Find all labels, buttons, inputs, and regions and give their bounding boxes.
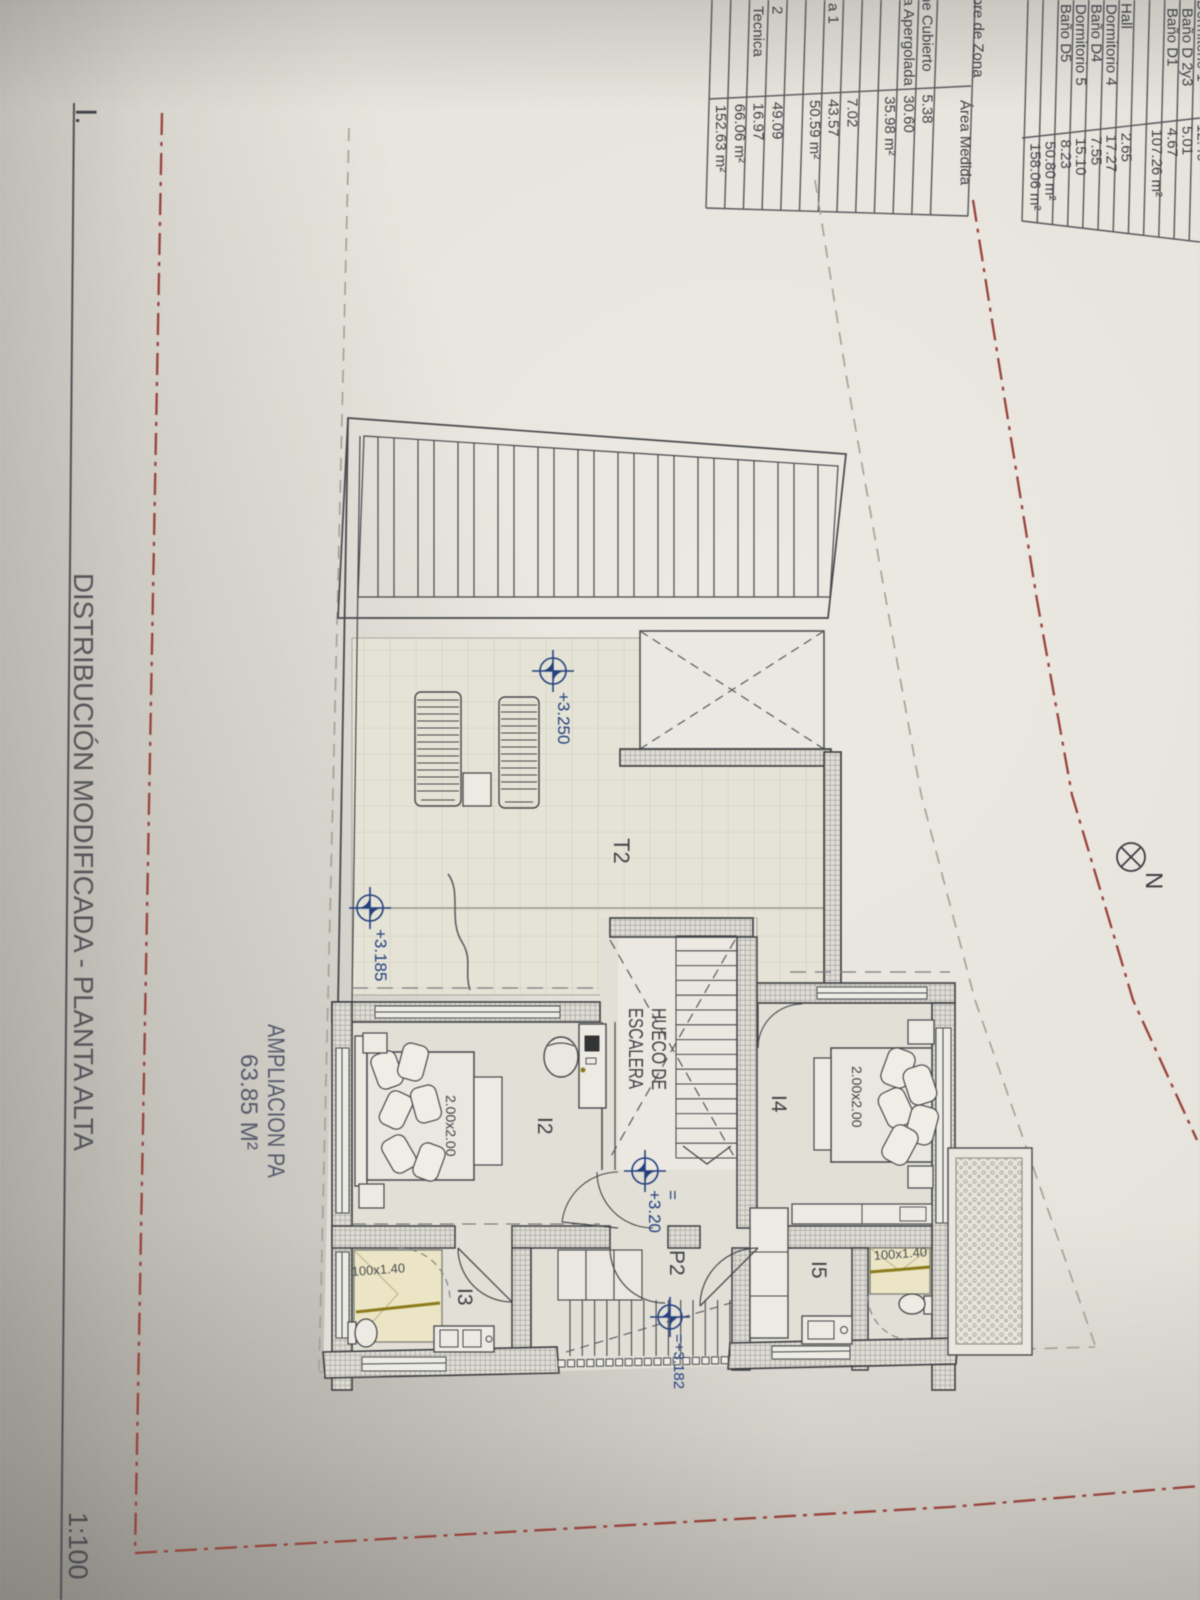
svg-text:16.97: 16.97: [750, 103, 767, 141]
svg-text:=+3.182: =+3.182: [670, 1334, 687, 1389]
svg-text:+3.20: +3.20: [645, 1190, 664, 1233]
svg-text:DISTRIBUCIÓN MODIFICADA - PLAN: DISTRIBUCIÓN MODIFICADA - PLANTA ALTA: [68, 573, 99, 1151]
svg-text:N: N: [1140, 872, 1167, 889]
svg-text:7.55: 7.55: [1087, 136, 1104, 165]
svg-text:AMPLIACION PA: AMPLIACION PA: [262, 1024, 289, 1178]
svg-text:a 1: a 1: [825, 3, 842, 24]
svg-text:15.10: 15.10: [1072, 138, 1089, 176]
svg-text:ESCALERA: ESCALERA: [624, 1008, 646, 1089]
svg-text:I.: I.: [69, 108, 102, 125]
svg-text:Dormitorio 4: Dormitorio 4: [1103, 4, 1120, 86]
svg-text:107.26 m²: 107.26 m²: [1148, 129, 1165, 197]
svg-text:2.00x2.00: 2.00x2.00: [849, 1066, 865, 1128]
svg-text:P2: P2: [665, 1250, 688, 1276]
svg-text:za Apergolada: za Apergolada: [900, 0, 917, 87]
svg-text:50.59 m²: 50.59 m²: [806, 100, 823, 159]
svg-text:Nombre de Zona: Nombre de Zona: [969, 0, 986, 78]
svg-text:5.38: 5.38: [919, 94, 936, 123]
svg-text:2: 2: [768, 6, 785, 14]
svg-text:17.27: 17.27: [1103, 135, 1120, 173]
svg-text:Tecnica: Tecnica: [750, 6, 767, 58]
svg-text:Baño D5: Baño D5: [1057, 4, 1074, 62]
svg-text:7.02: 7.02: [844, 98, 861, 127]
svg-text:30.60: 30.60: [900, 95, 917, 133]
svg-text:12.49: 12.49: [1194, 124, 1200, 162]
svg-text:=: =: [663, 1190, 682, 1200]
svg-text:Área Medida: Área Medida: [956, 100, 973, 186]
svg-text:8.23: 8.23: [1057, 140, 1074, 169]
svg-text:Baño D 2y3: Baño D 2y3: [1179, 8, 1196, 86]
svg-text:Dormitorio 5: Dormitorio 5: [1072, 4, 1089, 86]
svg-text:2.65: 2.65: [1118, 133, 1135, 162]
svg-text:43.57: 43.57: [825, 99, 842, 137]
svg-text:+3.250: +3.250: [554, 692, 573, 744]
svg-text:he Cubierto: he Cubierto: [919, 0, 936, 72]
svg-text:Hall: Hall: [1118, 3, 1135, 29]
svg-text:35.98 m²: 35.98 m²: [881, 96, 898, 155]
svg-text:Baño D4: Baño D4: [1087, 4, 1104, 62]
svg-text:I5: I5: [807, 1261, 830, 1279]
svg-text:49.09: 49.09: [768, 102, 785, 140]
svg-text:I3: I3: [453, 1288, 476, 1306]
svg-text:I4: I4: [767, 1095, 790, 1113]
svg-text:1:100: 1:100: [63, 1512, 93, 1580]
svg-text:2.00x2.00: 2.00x2.00: [443, 1095, 459, 1157]
svg-text:158.06 m²: 158.06 m²: [1027, 143, 1044, 211]
svg-text:I2: I2: [533, 1117, 556, 1135]
svg-text:5.01: 5.01: [1179, 126, 1196, 155]
svg-text:152.63 m²: 152.63 m²: [712, 105, 729, 173]
svg-text:63.85 M²: 63.85 M²: [235, 1054, 262, 1150]
svg-text:50.80 m²: 50.80 m²: [1042, 141, 1059, 200]
svg-text:Baño D1: Baño D1: [1163, 8, 1180, 66]
svg-text:T2: T2: [609, 838, 634, 864]
svg-text:+3.185: +3.185: [371, 929, 390, 981]
svg-text:66.06 m²: 66.06 m²: [731, 104, 748, 163]
svg-text:4.67: 4.67: [1163, 128, 1180, 157]
svg-text:Dormitorio 1: Dormitorio 1: [1194, 0, 1200, 82]
svg-text:HUECO DE: HUECO DE: [647, 1008, 669, 1090]
